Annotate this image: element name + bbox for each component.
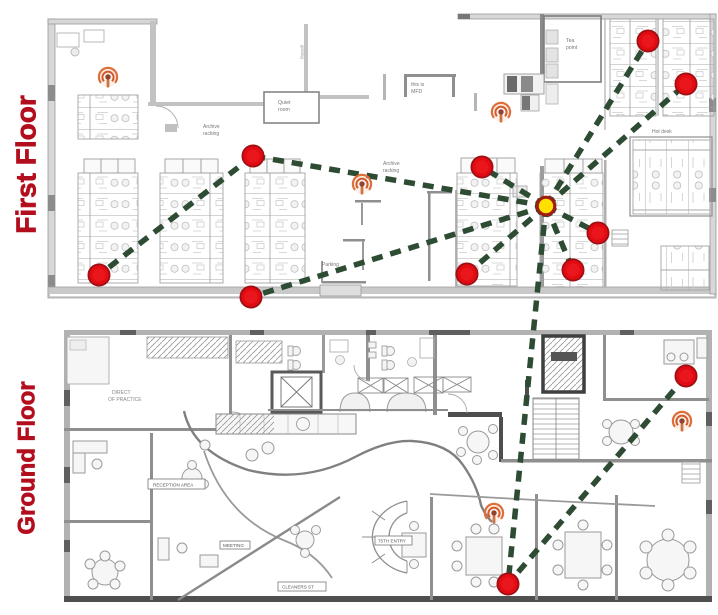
svg-text:Archive: Archive [383,161,400,167]
svg-text:First Floor: First Floor [10,95,41,234]
svg-text:CLEANERS ST: CLEANERS ST [282,585,314,590]
svg-text:MEETING: MEETING [223,543,244,548]
svg-text:Quiet: Quiet [278,100,291,106]
svg-text:Ground Floor: Ground Floor [13,381,40,534]
svg-text:Parking: Parking [322,262,339,268]
svg-text:grating: grating [300,45,305,59]
svg-text:this is: this is [411,82,425,88]
svg-text:racking: racking [203,131,219,137]
svg-text:Tea: Tea [566,38,574,44]
svg-text:DIRECT: DIRECT [112,390,131,396]
svg-text:Archive: Archive [203,124,220,130]
svg-text:room: room [278,107,290,113]
svg-text:racking: racking [383,168,399,174]
svg-text:point: point [566,45,578,51]
svg-text:MFD: MFD [411,89,422,95]
svg-text:75TH ENTRY: 75TH ENTRY [378,539,406,544]
svg-text:RECEPTION AREA: RECEPTION AREA [153,483,194,488]
svg-text:Hot desk: Hot desk [652,129,672,135]
svg-text:OF PRACTICE: OF PRACTICE [108,397,142,403]
